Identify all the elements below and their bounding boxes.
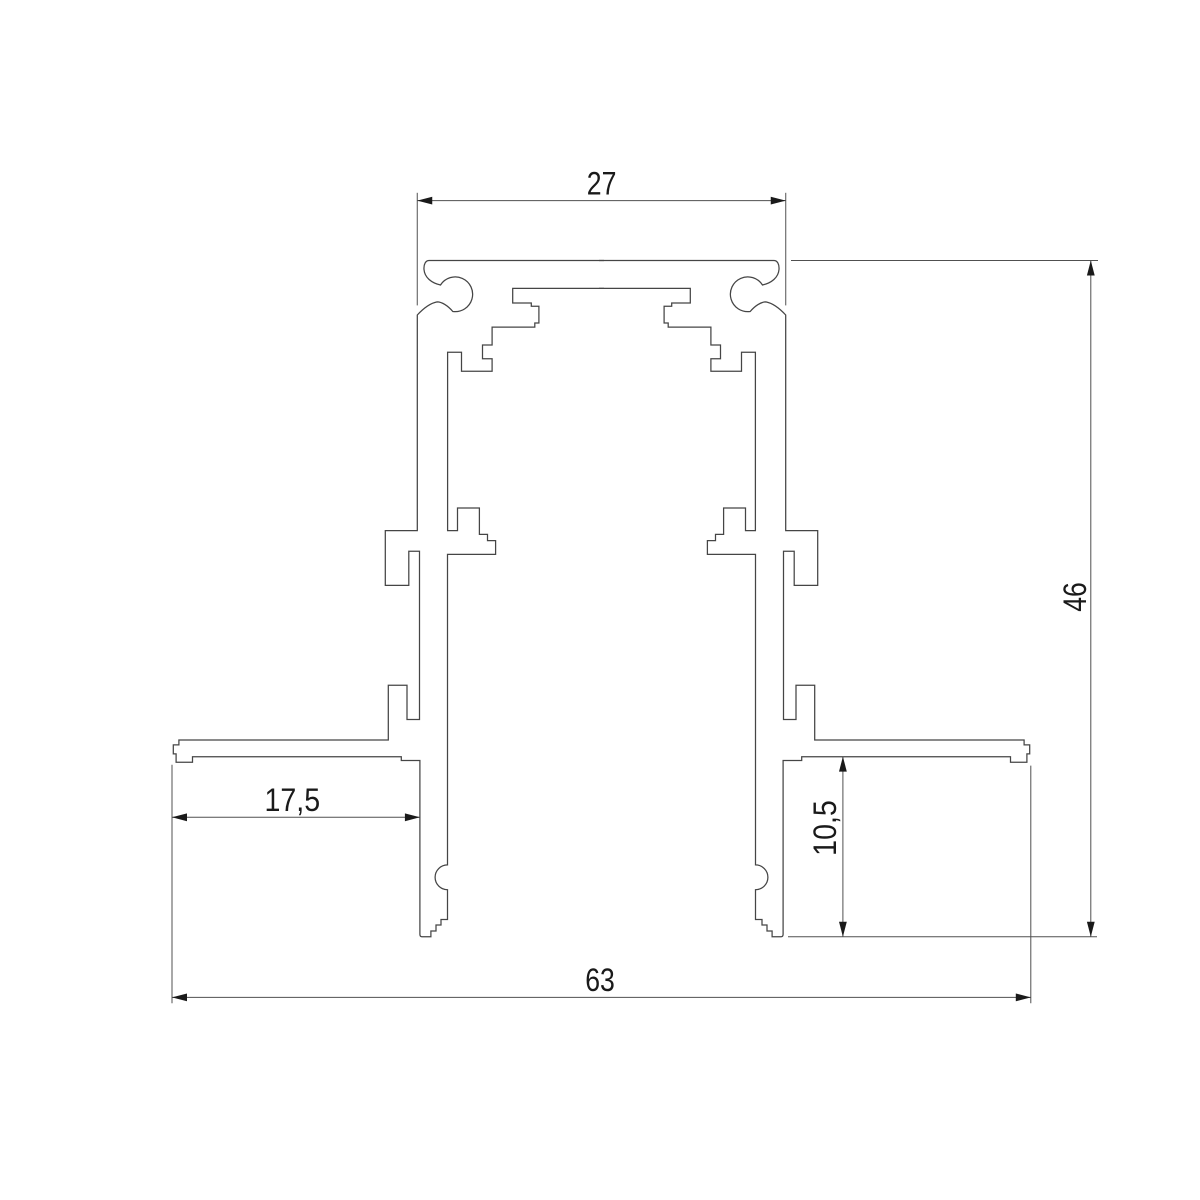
svg-text:17,5: 17,5: [264, 782, 320, 818]
svg-text:63: 63: [585, 963, 615, 999]
svg-text:46: 46: [1058, 582, 1094, 612]
svg-text:10,5: 10,5: [807, 800, 843, 856]
svg-text:27: 27: [587, 166, 617, 202]
